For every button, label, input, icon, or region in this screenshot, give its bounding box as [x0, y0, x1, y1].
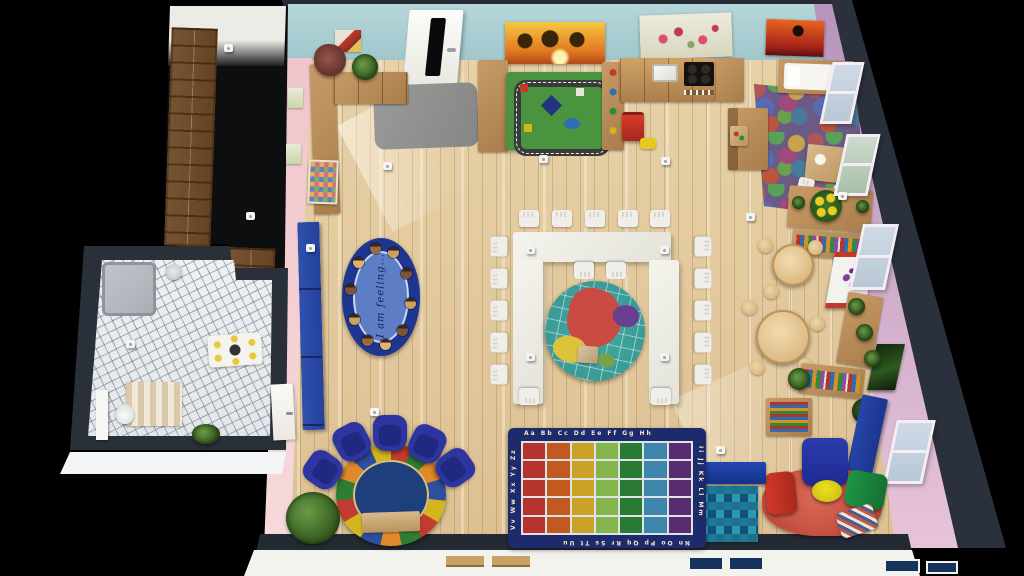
white-chair: [519, 388, 539, 405]
u-table-top: [513, 232, 671, 262]
ceiling-lamp: [224, 44, 233, 52]
alphabet-rug-letters-top: Aa Bb Cc Dd Ee Ff Gg Hh: [524, 429, 690, 439]
rug-color-cell: [547, 498, 569, 514]
doll-bed-pillow: [787, 66, 801, 86]
white-chair: [695, 269, 712, 289]
white-chair: [519, 210, 539, 227]
emotion-face: [405, 298, 416, 309]
ceiling-lamp: [126, 340, 135, 348]
dried-plant: [314, 44, 346, 76]
chair: [742, 300, 757, 315]
rug-color-cell: [620, 461, 642, 477]
emotion-face: [401, 268, 412, 279]
ottoman-yellow: [812, 480, 842, 502]
white-chair: [650, 210, 670, 227]
white-chair: [651, 388, 671, 405]
white-chair: [552, 210, 572, 227]
toy-house: [520, 84, 528, 92]
play-stove: [684, 62, 714, 86]
plant: [848, 298, 865, 315]
chair: [758, 238, 773, 253]
rug-color-cell: [547, 443, 569, 459]
chair: [808, 240, 823, 255]
rug-color-cell: [523, 443, 545, 459]
rug-color-cell: [644, 517, 666, 533]
emotion-face: [362, 335, 373, 346]
road-loop: [514, 80, 610, 156]
plant: [352, 54, 378, 80]
door-handle: [447, 48, 456, 52]
rug-color-cell: [669, 461, 691, 477]
painting-floral-watercolor: [639, 12, 732, 59]
rug-color-cell: [572, 517, 594, 533]
bottom-window-wood: [444, 554, 486, 569]
round-table: [756, 310, 810, 364]
feelings-rug-text: I am feeling...: [376, 238, 387, 354]
alphabet-rug-letters-bottom: Nn Oo Pp Qq Rr Ss Tt Uu: [524, 537, 690, 547]
rug-color-cell: [669, 517, 691, 533]
toy-house: [524, 124, 532, 132]
white-chair: [585, 210, 605, 227]
poster-small: [288, 88, 303, 108]
wooden-box: [577, 345, 598, 363]
rug-color-cell: [572, 461, 594, 477]
bottom-window-navy: [884, 559, 920, 573]
emotion-face: [388, 247, 399, 258]
toy-cart-red: [622, 112, 644, 141]
changing-mat: [207, 332, 263, 368]
books: [770, 402, 808, 432]
emotion-face: [370, 243, 381, 254]
ceiling-lamp: [746, 213, 755, 221]
white-chair: [491, 301, 508, 321]
u-table-left: [513, 260, 543, 404]
white-chair: [606, 262, 626, 279]
striped-rug: [126, 382, 182, 426]
painting-palm-sunset: [505, 22, 605, 64]
u-table-right: [649, 260, 679, 404]
white-chair: [695, 301, 712, 321]
foam-chair-red: [764, 471, 798, 516]
rug-color-cell: [669, 443, 691, 459]
ceiling-lamp: [526, 353, 535, 361]
chair: [764, 284, 779, 299]
rug-color-cell: [572, 443, 594, 459]
bottom-exterior-wall: [242, 550, 922, 576]
emotion-face: [380, 339, 391, 350]
rug-color-cell: [523, 517, 545, 533]
emotion-face: [349, 314, 360, 325]
hearts-poster: [307, 159, 339, 204]
ceiling-lamp: [306, 244, 315, 252]
white-chair: [695, 237, 712, 257]
toy-yellow: [640, 138, 656, 149]
partition-wall: [96, 390, 108, 440]
cabinet: [478, 60, 508, 152]
chair: [750, 360, 765, 375]
rug-color-cell: [547, 517, 569, 533]
painting-savanna-sunset: [765, 19, 824, 57]
door-handle: [286, 412, 293, 415]
alphabet-rug: Aa Bb Cc Dd Ee Ff Gg Hh Nn Oo Pp Qq Rr S…: [508, 428, 706, 548]
rug-color-cell: [620, 480, 642, 496]
play-sink: [652, 64, 678, 82]
bookshelf: [766, 398, 812, 436]
rug-color-cell: [644, 498, 666, 514]
bathroom-exterior-wall: [58, 450, 288, 476]
locker-cubbies: [164, 27, 218, 246]
toilet: [116, 404, 134, 424]
ceiling-lamp: [526, 246, 535, 254]
rug-color-cell: [644, 443, 666, 459]
ceiling-lamp: [660, 246, 669, 254]
bottom-window-navy: [926, 561, 958, 574]
foam-couch-blue: [802, 438, 848, 486]
emotion-face: [397, 325, 408, 336]
plant: [856, 324, 873, 341]
play-kitchen-cabinet: [716, 58, 744, 102]
rug-color-cell: [596, 498, 618, 514]
stove-knobs: [684, 90, 714, 95]
toy-house: [576, 88, 584, 96]
rug-color-cell: [669, 480, 691, 496]
flower-table: [730, 126, 748, 146]
alphabet-rug-letters-right: Ii Jj Kk Ll Mm: [695, 446, 705, 530]
bush-plant: [286, 492, 340, 544]
rug-color-cell: [523, 480, 545, 496]
bottom-window-wood: [490, 554, 532, 569]
potted-plant: [856, 200, 869, 213]
rug-color-cell: [596, 461, 618, 477]
ceiling-lamp: [383, 162, 392, 170]
alphabet-rug-letters-left: Vv Ww Xx Yy Zz: [509, 446, 519, 530]
rug-color-cell: [620, 517, 642, 533]
plant: [864, 350, 881, 367]
plant: [788, 368, 810, 390]
rug-color-cell: [596, 517, 618, 533]
rug-color-cell: [620, 443, 642, 459]
toy-pond: [564, 118, 580, 129]
ceiling-lamp: [246, 212, 255, 220]
potted-plant: [792, 196, 805, 209]
rug-color-cell: [572, 498, 594, 514]
feelings-rug: I am feeling...: [342, 238, 420, 356]
rug-color-cell: [644, 480, 666, 496]
rug-color-cell: [669, 498, 691, 514]
alphabet-rug-grid: [521, 441, 693, 535]
chair: [810, 316, 825, 331]
rug-color-cell: [523, 498, 545, 514]
road-play-rug: [506, 72, 604, 150]
ceiling-lamp: [716, 446, 725, 454]
blue-armchair: [373, 415, 407, 451]
poster-small: [286, 144, 301, 164]
rug-color-cell: [547, 461, 569, 477]
rug-color-cell: [644, 461, 666, 477]
rug-color-cell: [523, 461, 545, 477]
rug-color-cell: [572, 480, 594, 496]
rug-color-cell: [547, 480, 569, 496]
plant: [192, 424, 220, 444]
ceiling-lamp: [660, 353, 669, 361]
ceiling-lamp: [838, 192, 847, 200]
rug-color-cell: [620, 498, 642, 514]
wooden-bench: [362, 511, 421, 533]
bottom-window-navy: [728, 556, 764, 571]
white-chair: [618, 210, 638, 227]
bathroom-sink: [166, 264, 182, 280]
bottom-window-navy: [688, 556, 724, 571]
floor-plan-scene: Aa Bb Cc Dd Ee Ff Gg Hh Nn Oo Pp Qq Rr S…: [0, 0, 1024, 576]
white-chair: [695, 365, 712, 385]
white-chair: [491, 365, 508, 385]
white-chair: [574, 262, 594, 279]
ceiling-lamp: [370, 408, 379, 416]
ceiling-lamp: [539, 155, 548, 163]
books: [803, 369, 861, 393]
ceiling-lamp: [661, 157, 670, 165]
shower: [102, 262, 156, 316]
white-chair: [491, 333, 508, 353]
white-chair: [491, 237, 508, 257]
white-chair: [491, 269, 508, 289]
continent-green: [596, 352, 616, 368]
rug-color-cell: [596, 443, 618, 459]
white-chair: [695, 333, 712, 353]
rug-color-cell: [596, 480, 618, 496]
